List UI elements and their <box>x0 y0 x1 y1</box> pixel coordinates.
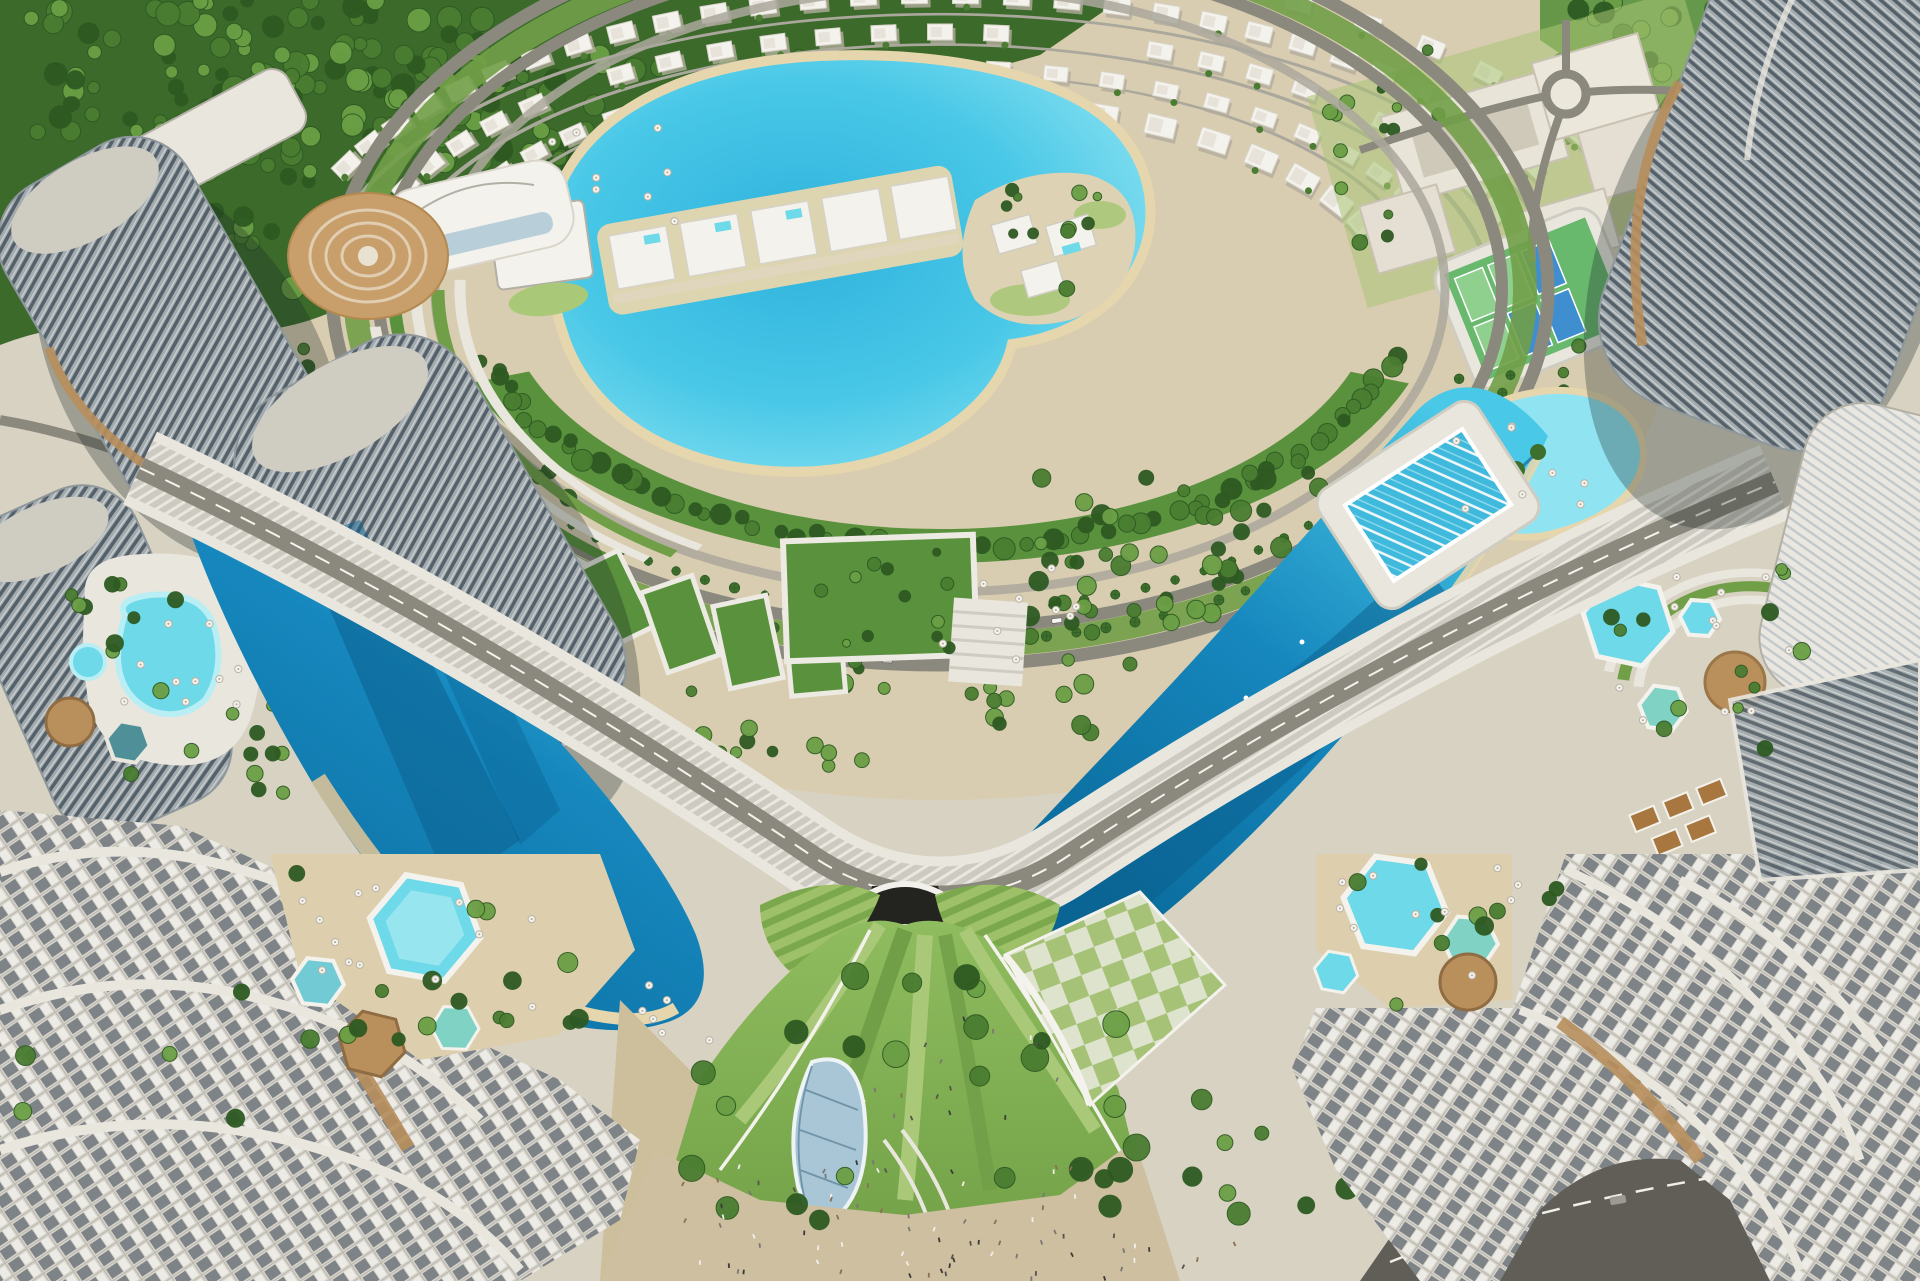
umbrella-pole <box>641 1010 643 1012</box>
tree <box>166 66 178 78</box>
tree <box>716 1096 735 1115</box>
umbrella-pole <box>1618 687 1620 689</box>
person <box>1030 1035 1032 1040</box>
tree <box>612 464 632 484</box>
tree <box>1390 998 1403 1011</box>
tree <box>1749 682 1760 693</box>
person <box>803 1231 805 1236</box>
tree <box>1035 537 1048 550</box>
tree <box>105 577 121 593</box>
tree <box>572 449 594 471</box>
umbrella-pole <box>1642 719 1644 721</box>
umbrella-pole <box>357 892 359 894</box>
tree <box>1178 485 1190 497</box>
tree <box>1211 542 1225 556</box>
lagoon-villa <box>890 176 956 239</box>
tree <box>1099 548 1113 562</box>
tree <box>289 866 305 882</box>
theater-stage <box>358 246 378 266</box>
tree <box>564 434 577 447</box>
tree <box>153 683 169 699</box>
tree <box>735 510 749 524</box>
tree <box>250 726 265 741</box>
umbrella-pole <box>657 127 659 129</box>
wood-deck <box>46 698 94 746</box>
umbrella-pole <box>237 668 239 670</box>
tree <box>168 592 184 608</box>
tree <box>1215 493 1230 508</box>
umbrella-pole <box>531 1006 533 1008</box>
tree <box>364 10 377 23</box>
tree <box>1001 201 1012 212</box>
tree <box>1257 503 1271 517</box>
tree <box>1099 1195 1121 1217</box>
umbrella-pole <box>208 623 210 625</box>
car <box>1052 618 1063 624</box>
umbrella-pole <box>167 623 169 625</box>
person <box>1004 1115 1006 1120</box>
umbrella-pole <box>478 933 480 935</box>
villa-garden-tree <box>1114 89 1121 96</box>
person <box>901 1093 903 1098</box>
tree <box>156 2 180 26</box>
tree <box>1217 1135 1233 1151</box>
umbrella-pole <box>1583 482 1585 484</box>
tree <box>1776 564 1788 576</box>
tree <box>1078 517 1094 533</box>
tree <box>1139 470 1154 485</box>
umbrella-pole <box>348 961 350 963</box>
umbrella-pole <box>531 918 533 920</box>
umbrella-pole <box>996 630 998 632</box>
umbrella-pole <box>708 1039 710 1041</box>
tree <box>1230 500 1251 521</box>
villa <box>1003 0 1033 10</box>
tree <box>954 965 979 990</box>
tree <box>810 1210 830 1230</box>
tree <box>247 765 263 781</box>
tree <box>1123 657 1137 671</box>
villa <box>928 24 956 44</box>
tree <box>899 590 911 602</box>
tree <box>1183 1167 1202 1186</box>
tree <box>1234 524 1250 540</box>
villa <box>901 0 930 8</box>
umbrella-pole <box>1464 508 1466 510</box>
tree <box>1076 494 1093 511</box>
villa-garden-tree <box>1254 83 1261 90</box>
tree <box>1335 182 1348 195</box>
umbrella-pole <box>435 978 437 980</box>
umbrella-pole <box>1471 974 1473 976</box>
tree <box>407 8 431 32</box>
tree <box>153 34 175 56</box>
tree <box>1352 235 1368 251</box>
tree <box>1604 609 1620 625</box>
person <box>992 1029 994 1034</box>
tree <box>691 1061 715 1085</box>
tree <box>1384 210 1393 219</box>
tree <box>970 1066 990 1086</box>
umbrella-pole <box>334 941 336 943</box>
villa-roof-detail <box>874 28 886 38</box>
umbrella-pole <box>140 664 142 666</box>
villa-roof-detail <box>1150 44 1163 56</box>
tree <box>1338 414 1350 426</box>
tree <box>227 1109 245 1127</box>
tree <box>262 16 283 37</box>
tree <box>1061 224 1076 239</box>
umbrella-pole <box>1069 615 1071 617</box>
person <box>1053 1169 1055 1174</box>
render-canvas <box>0 0 1920 1281</box>
tree <box>88 81 100 93</box>
umbrella-pole <box>942 643 944 645</box>
tree <box>394 45 414 65</box>
tree <box>1381 230 1393 242</box>
tree <box>1033 469 1051 487</box>
umbrella-pole <box>1051 567 1053 569</box>
tree <box>1219 1185 1236 1202</box>
person <box>867 1183 869 1188</box>
umbrella-pole <box>1521 493 1523 495</box>
tree <box>280 168 296 184</box>
person <box>1133 1258 1135 1263</box>
tree <box>1103 1011 1130 1038</box>
tree <box>745 521 760 536</box>
umbrella-pole <box>1339 907 1341 909</box>
tree <box>529 421 546 438</box>
tree <box>855 753 870 768</box>
umbrella-pole <box>123 701 125 703</box>
tree <box>441 26 458 43</box>
tree <box>1072 185 1087 200</box>
umbrella-pole <box>175 681 177 683</box>
tree <box>993 717 1006 730</box>
tree <box>850 571 862 583</box>
tree <box>1072 716 1091 735</box>
tree <box>1549 882 1564 897</box>
umbrella-pole <box>576 132 578 134</box>
tree <box>451 993 467 1009</box>
tree <box>88 45 102 59</box>
tree <box>1069 1157 1093 1181</box>
umbrella-pole <box>595 189 597 191</box>
tree <box>1291 454 1305 468</box>
villa-roof-detail <box>710 46 723 58</box>
tree <box>1349 874 1366 891</box>
villa-garden-tree <box>580 53 587 60</box>
tree <box>1187 600 1205 618</box>
tree <box>1475 917 1493 935</box>
lagoon-villa <box>609 226 675 289</box>
float <box>1300 640 1305 645</box>
tree <box>1156 595 1173 612</box>
tree <box>1084 625 1100 641</box>
tree <box>226 23 242 39</box>
umbrella-pole <box>1415 913 1417 915</box>
villa <box>983 25 1012 46</box>
tree <box>264 224 280 240</box>
stepped-terrace <box>948 598 1028 687</box>
lagoon-villa <box>822 188 888 251</box>
tree <box>1062 654 1074 666</box>
tree <box>288 8 308 28</box>
umbrella-pole <box>185 701 187 703</box>
tree <box>106 635 123 652</box>
tree <box>303 165 317 179</box>
tree <box>933 548 941 556</box>
person <box>1035 1271 1037 1276</box>
umbrella-pole <box>983 583 985 585</box>
tree <box>1009 229 1018 238</box>
tree <box>49 106 71 128</box>
person <box>1030 1276 1032 1281</box>
umbrella-pole <box>458 901 460 903</box>
umbrella-pole <box>1444 911 1446 913</box>
tree <box>1614 624 1626 636</box>
tree <box>1207 509 1223 525</box>
villa <box>850 0 880 10</box>
tree <box>821 745 837 761</box>
umbrella-pole <box>359 964 361 966</box>
tree <box>372 68 392 88</box>
tree <box>343 0 365 18</box>
tree <box>1108 1157 1133 1182</box>
tree <box>1733 703 1743 713</box>
tree <box>1074 674 1094 694</box>
tree <box>878 682 890 694</box>
tree <box>265 746 280 761</box>
umbrella-pole <box>194 680 196 682</box>
wood-deck <box>1440 954 1496 1010</box>
tree <box>1101 524 1116 539</box>
tree <box>1656 721 1672 737</box>
umbrella-pole <box>1720 592 1722 594</box>
tree <box>301 126 321 146</box>
tower-slab-east <box>1730 660 1920 880</box>
tree <box>741 720 758 737</box>
tree <box>903 973 922 992</box>
tree <box>785 1020 808 1043</box>
umbrella-pole <box>1015 658 1017 660</box>
umbrella-pole <box>319 919 321 921</box>
tree <box>994 1167 1015 1188</box>
umbrella-pole <box>652 1018 654 1020</box>
umbrella-pole <box>1055 609 1057 611</box>
tree <box>349 1019 366 1036</box>
umbrella-pole <box>1353 927 1355 929</box>
tree <box>210 37 230 57</box>
tree <box>354 38 367 51</box>
tree <box>1059 281 1075 297</box>
villa-roof-detail <box>763 38 775 49</box>
villa-roof-detail <box>818 32 830 43</box>
umbrella-pole <box>1341 881 1343 883</box>
tree <box>1082 217 1095 230</box>
tree <box>1255 1126 1269 1140</box>
villa-garden-tree <box>1170 99 1177 106</box>
villa-roof-detail <box>1046 68 1058 78</box>
umbrella-pole <box>1724 711 1726 713</box>
umbrella-pole <box>1372 875 1374 877</box>
tree <box>787 1194 808 1215</box>
tree <box>1380 124 1390 134</box>
tree <box>1212 577 1225 590</box>
villa-garden-tree <box>1310 143 1317 150</box>
tree <box>843 639 851 647</box>
tree <box>883 1041 910 1068</box>
tree <box>1227 1202 1250 1225</box>
tree <box>24 11 38 25</box>
tree <box>767 746 778 757</box>
villa-garden-tree <box>1305 187 1312 194</box>
umbrella-pole <box>1715 625 1717 627</box>
tree <box>1118 515 1135 532</box>
tree <box>504 972 522 990</box>
tree <box>815 584 828 597</box>
villa-garden-tree <box>618 83 625 90</box>
tree <box>123 112 137 126</box>
car-body <box>1052 618 1063 624</box>
tree <box>1163 614 1179 630</box>
person <box>1134 1244 1136 1249</box>
tree <box>78 23 99 44</box>
tree <box>467 900 485 918</box>
umbrella-pole <box>1551 472 1553 474</box>
tree <box>1070 555 1084 569</box>
umbrella-pole <box>661 1032 663 1034</box>
umbrella-pole <box>1075 606 1077 608</box>
tree <box>1056 686 1072 702</box>
tree <box>392 1033 405 1046</box>
tree <box>1170 501 1189 520</box>
tree <box>843 1036 865 1058</box>
tree <box>274 47 290 63</box>
tree <box>30 124 46 140</box>
umbrella-pole <box>1018 598 1020 600</box>
umbrella-pole <box>666 999 668 1001</box>
tree <box>822 760 835 773</box>
person <box>1032 1217 1034 1222</box>
umbrella-pole <box>1517 884 1519 886</box>
tree <box>716 1197 739 1220</box>
tree <box>545 426 561 442</box>
villa-roof-detail <box>1202 14 1216 27</box>
round-pool <box>71 645 105 679</box>
tree <box>1029 572 1048 591</box>
tree <box>341 114 363 136</box>
tree <box>1242 465 1258 481</box>
umbrella-pole <box>666 171 668 173</box>
tree <box>1123 1134 1150 1161</box>
umbrella-pole <box>674 220 676 222</box>
tree <box>1150 546 1167 563</box>
tree <box>558 953 578 973</box>
tree <box>1127 604 1141 618</box>
tree <box>44 63 67 86</box>
tree <box>1392 103 1401 112</box>
umbrella-pole <box>236 703 238 705</box>
tree <box>1298 1197 1315 1214</box>
tree <box>500 1013 514 1027</box>
villa-roof-detail <box>656 16 670 29</box>
villa-garden-tree <box>882 42 889 49</box>
tree <box>1735 665 1747 677</box>
umbrella-pole <box>1497 867 1499 869</box>
tree <box>1334 144 1348 158</box>
tree <box>993 538 1015 560</box>
tree <box>301 1030 319 1048</box>
tree <box>311 16 324 29</box>
umbrella-pole <box>1510 899 1512 901</box>
tree <box>867 557 881 571</box>
villa-garden-tree <box>1205 70 1212 77</box>
tree <box>216 68 229 81</box>
tree <box>234 984 250 1000</box>
tree <box>1013 193 1022 202</box>
tree <box>85 107 100 122</box>
tree <box>1102 508 1118 524</box>
person <box>893 1113 895 1118</box>
umbrella-pole <box>1765 576 1767 578</box>
tree <box>470 7 494 31</box>
villa-garden-tree <box>1001 42 1008 49</box>
aerial-resort-render <box>0 0 1920 1281</box>
villa-garden-tree <box>756 15 763 22</box>
tree <box>493 364 506 377</box>
umbrella-pole <box>375 887 377 889</box>
umbrella-pole <box>218 678 220 680</box>
person <box>1063 1234 1065 1239</box>
tree <box>1077 576 1096 595</box>
tree <box>198 64 210 76</box>
tree <box>124 767 139 782</box>
tree <box>1028 228 1039 239</box>
umbrella-pole <box>1455 440 1457 442</box>
tree <box>941 577 954 590</box>
tree <box>244 747 258 761</box>
umbrella-pole <box>647 196 649 198</box>
tree <box>418 1017 436 1035</box>
tree <box>775 525 788 538</box>
villa-roof-detail <box>931 27 942 37</box>
tree <box>1104 1096 1126 1118</box>
tree <box>1671 700 1687 716</box>
tree <box>881 563 893 575</box>
villa-garden-tree <box>1256 126 1263 133</box>
villa-garden-tree <box>423 173 430 180</box>
tree <box>16 1046 36 1066</box>
tree <box>1490 903 1506 919</box>
tree <box>1191 1089 1212 1110</box>
round-theater <box>288 193 448 319</box>
tree <box>1434 935 1449 950</box>
tree <box>1793 643 1810 660</box>
villa-roof-detail <box>1102 75 1114 86</box>
tree <box>346 68 369 91</box>
umbrella-pole <box>551 141 553 143</box>
tree <box>1093 192 1102 201</box>
villa-garden-tree <box>1252 167 1259 174</box>
tree <box>1302 466 1315 479</box>
lagoon-villa <box>680 213 746 276</box>
person <box>758 1181 760 1186</box>
tree <box>679 1155 705 1181</box>
tree <box>103 30 121 48</box>
tree <box>710 504 731 525</box>
umbrella-pole <box>1676 576 1678 578</box>
